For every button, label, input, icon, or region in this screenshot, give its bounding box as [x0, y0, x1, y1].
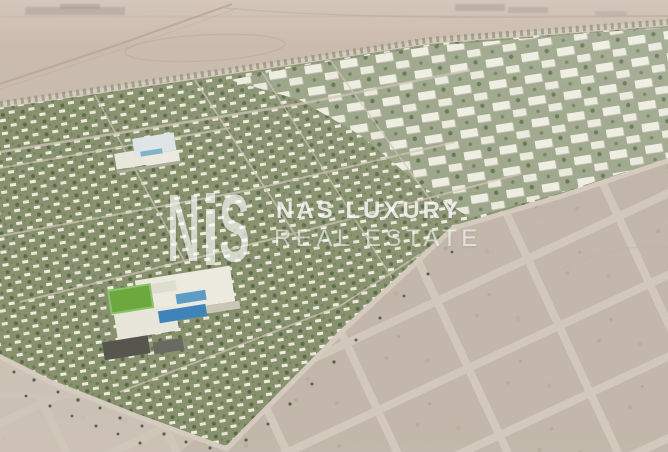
logo-letter-s: S [219, 193, 235, 265]
watermark-brand-name: NAS LUXURY [276, 197, 461, 225]
brand-logo: N S [167, 191, 267, 265]
logo-letter-n: N [167, 193, 183, 265]
logo-bar-icon [205, 193, 215, 265]
listing-photo-aerial-masterplan: N S NAS LUXURY REAL ESTATE [0, 0, 668, 452]
watermark-brand-tagline: REAL ESTATE [274, 225, 482, 253]
